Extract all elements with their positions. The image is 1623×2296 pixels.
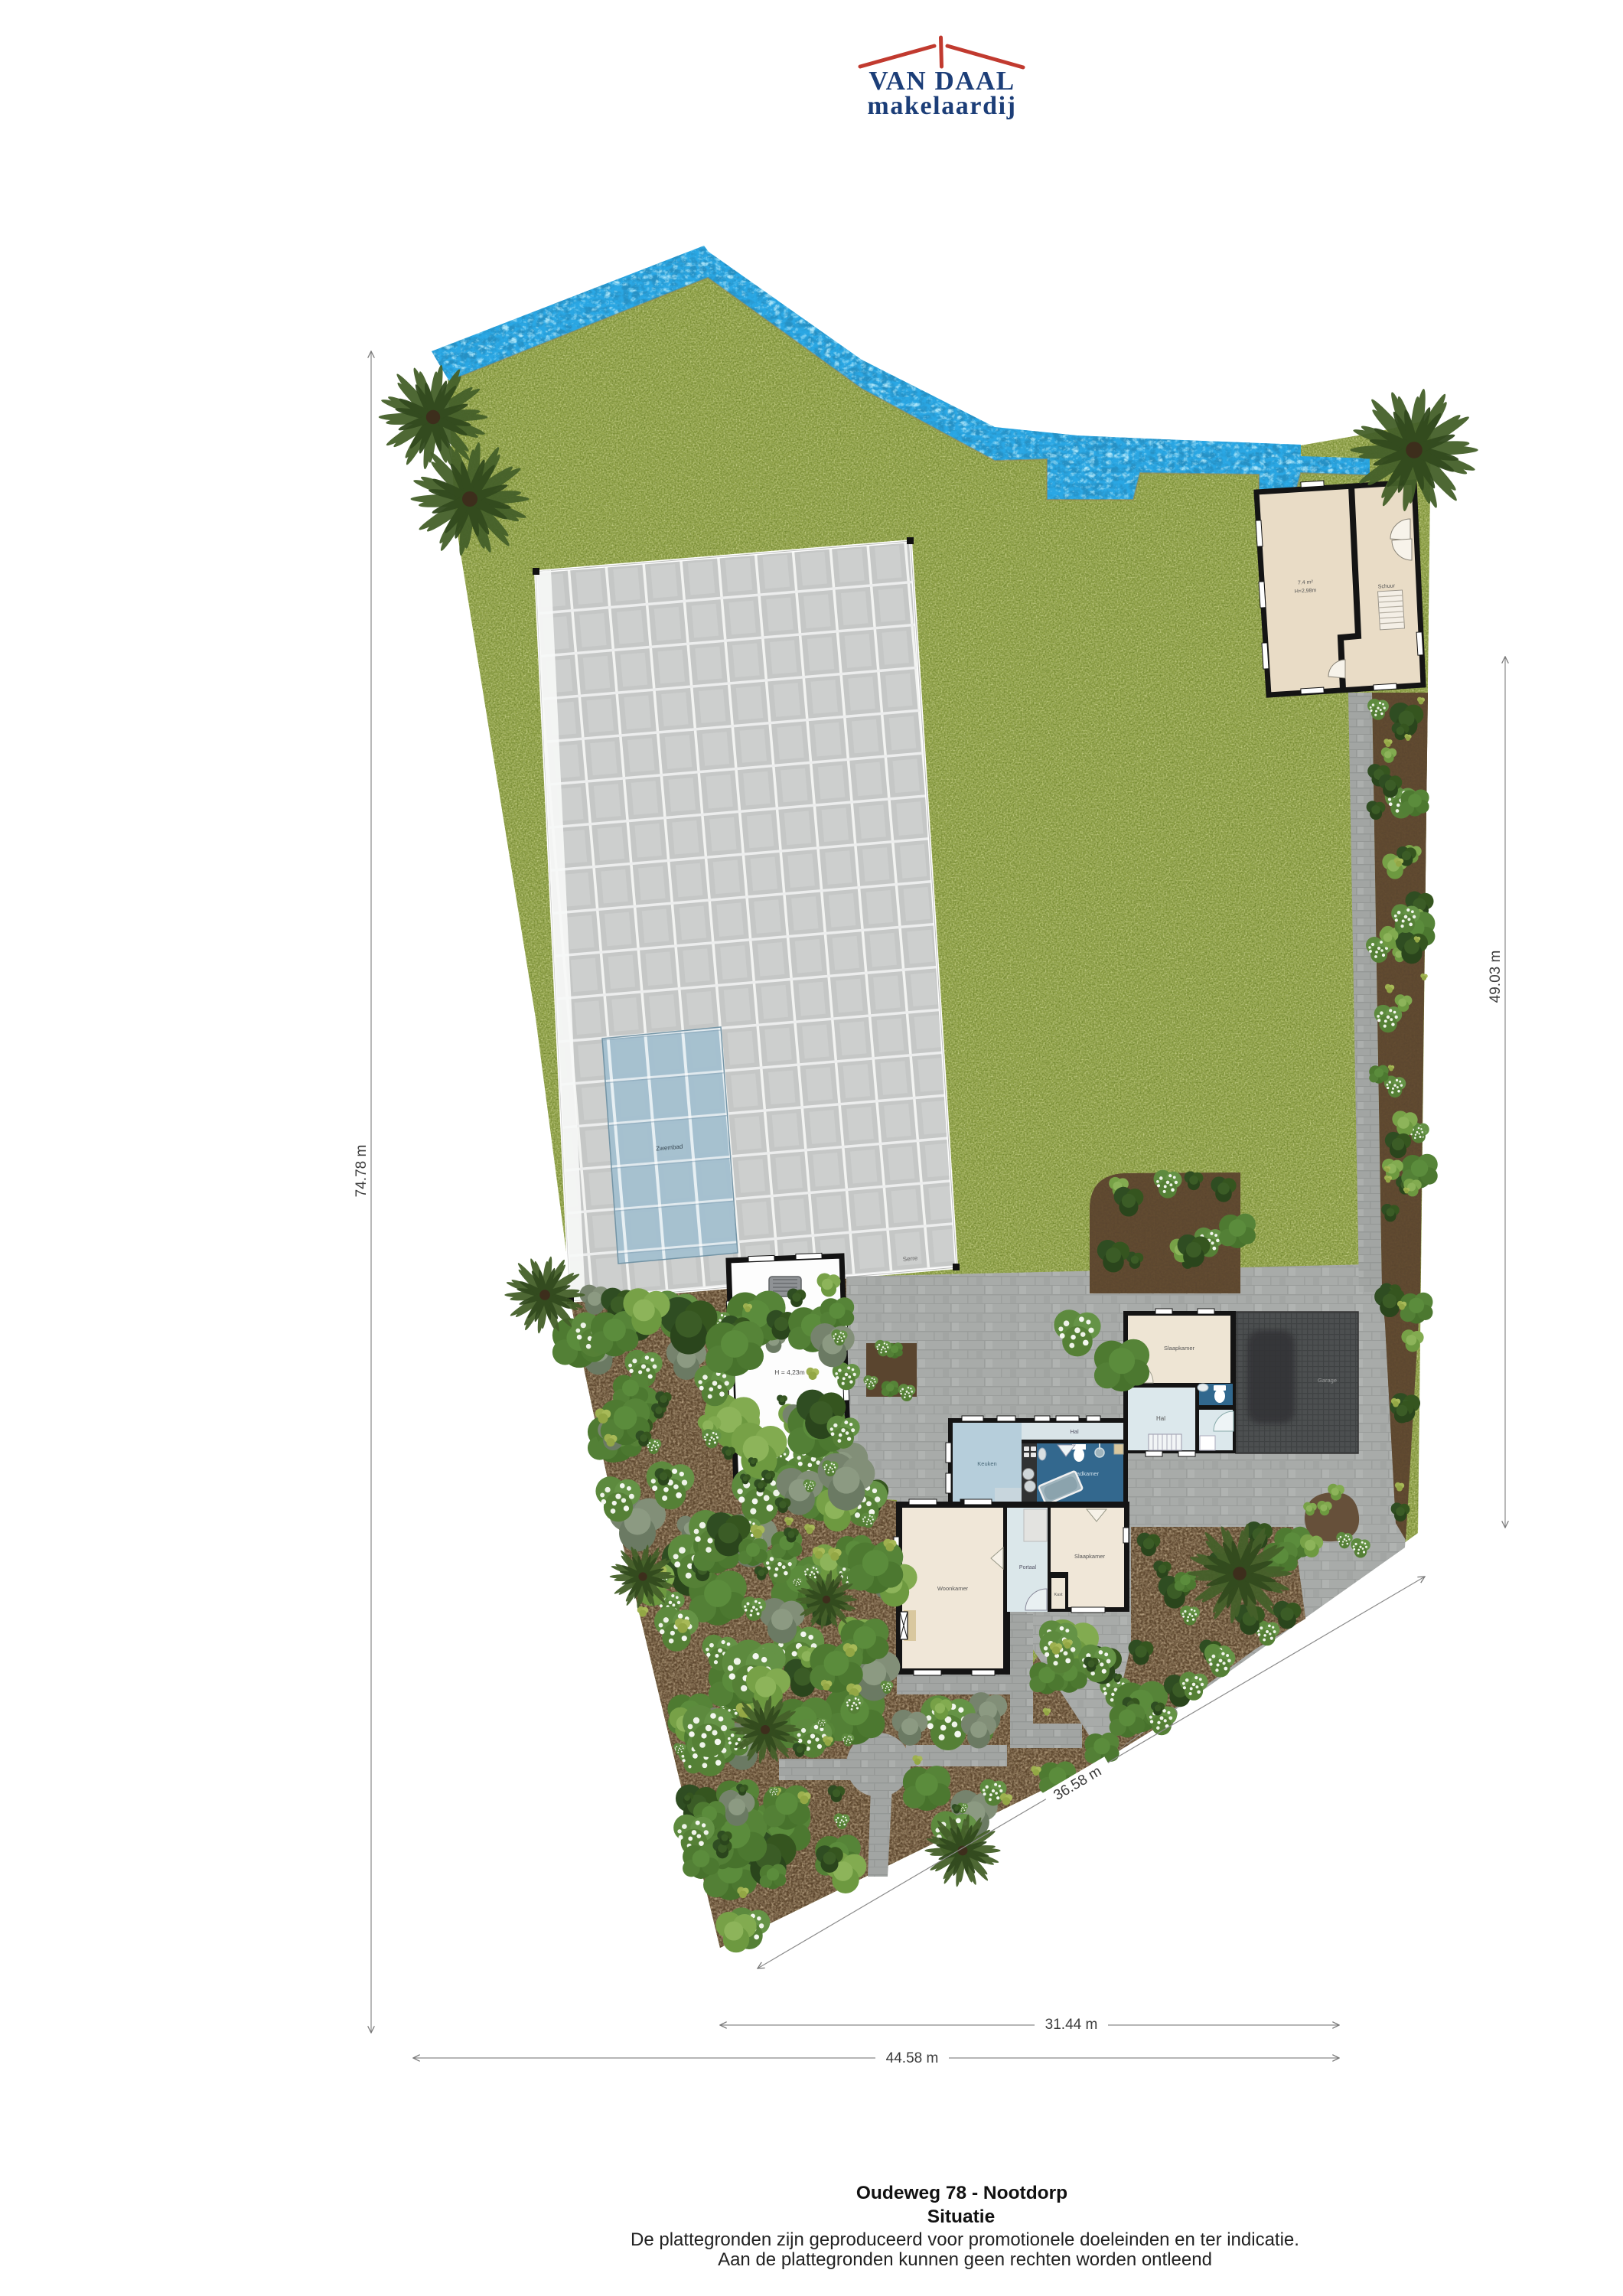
svg-text:Woonkamer: Woonkamer [937, 1585, 969, 1592]
svg-text:Situatie: Situatie [927, 2206, 996, 2227]
svg-text:49.03 m: 49.03 m [1488, 951, 1504, 1003]
svg-text:Schuur: Schuur [1378, 583, 1396, 589]
svg-text:Keuken: Keuken [977, 1460, 996, 1467]
svg-text:Hal: Hal [1156, 1415, 1165, 1422]
svg-text:Slaapkamer: Slaapkamer [1074, 1553, 1106, 1560]
svg-text:De plattegronden zijn geproduc: De plattegronden zijn geproduceerd voor … [631, 2229, 1299, 2250]
svg-text:74.78 m: 74.78 m [354, 1145, 370, 1198]
svg-text:Serre: Serre [902, 1254, 918, 1263]
svg-text:Portaal: Portaal [1019, 1565, 1037, 1570]
svg-text:H = 4,23m: H = 4,23m [774, 1368, 804, 1376]
svg-text:Slaapkamer: Slaapkamer [1164, 1345, 1195, 1352]
svg-text:Aan de plattegronden kunnen ge: Aan de plattegronden kunnen geen rechten… [718, 2249, 1212, 2270]
svg-text:44.58 m: 44.58 m [886, 2050, 939, 2066]
svg-text:31.44 m: 31.44 m [1045, 2017, 1098, 2033]
svg-text:Kast: Kast [1054, 1593, 1062, 1597]
svg-text:Garage: Garage [1318, 1377, 1337, 1384]
svg-text:Oudeweg 78 - Nootdorp: Oudeweg 78 - Nootdorp [856, 2183, 1067, 2203]
svg-text:Hal: Hal [1070, 1428, 1079, 1435]
svg-text:makelaardij: makelaardij [867, 92, 1016, 120]
svg-text:7.4 m²: 7.4 m² [1298, 579, 1314, 585]
